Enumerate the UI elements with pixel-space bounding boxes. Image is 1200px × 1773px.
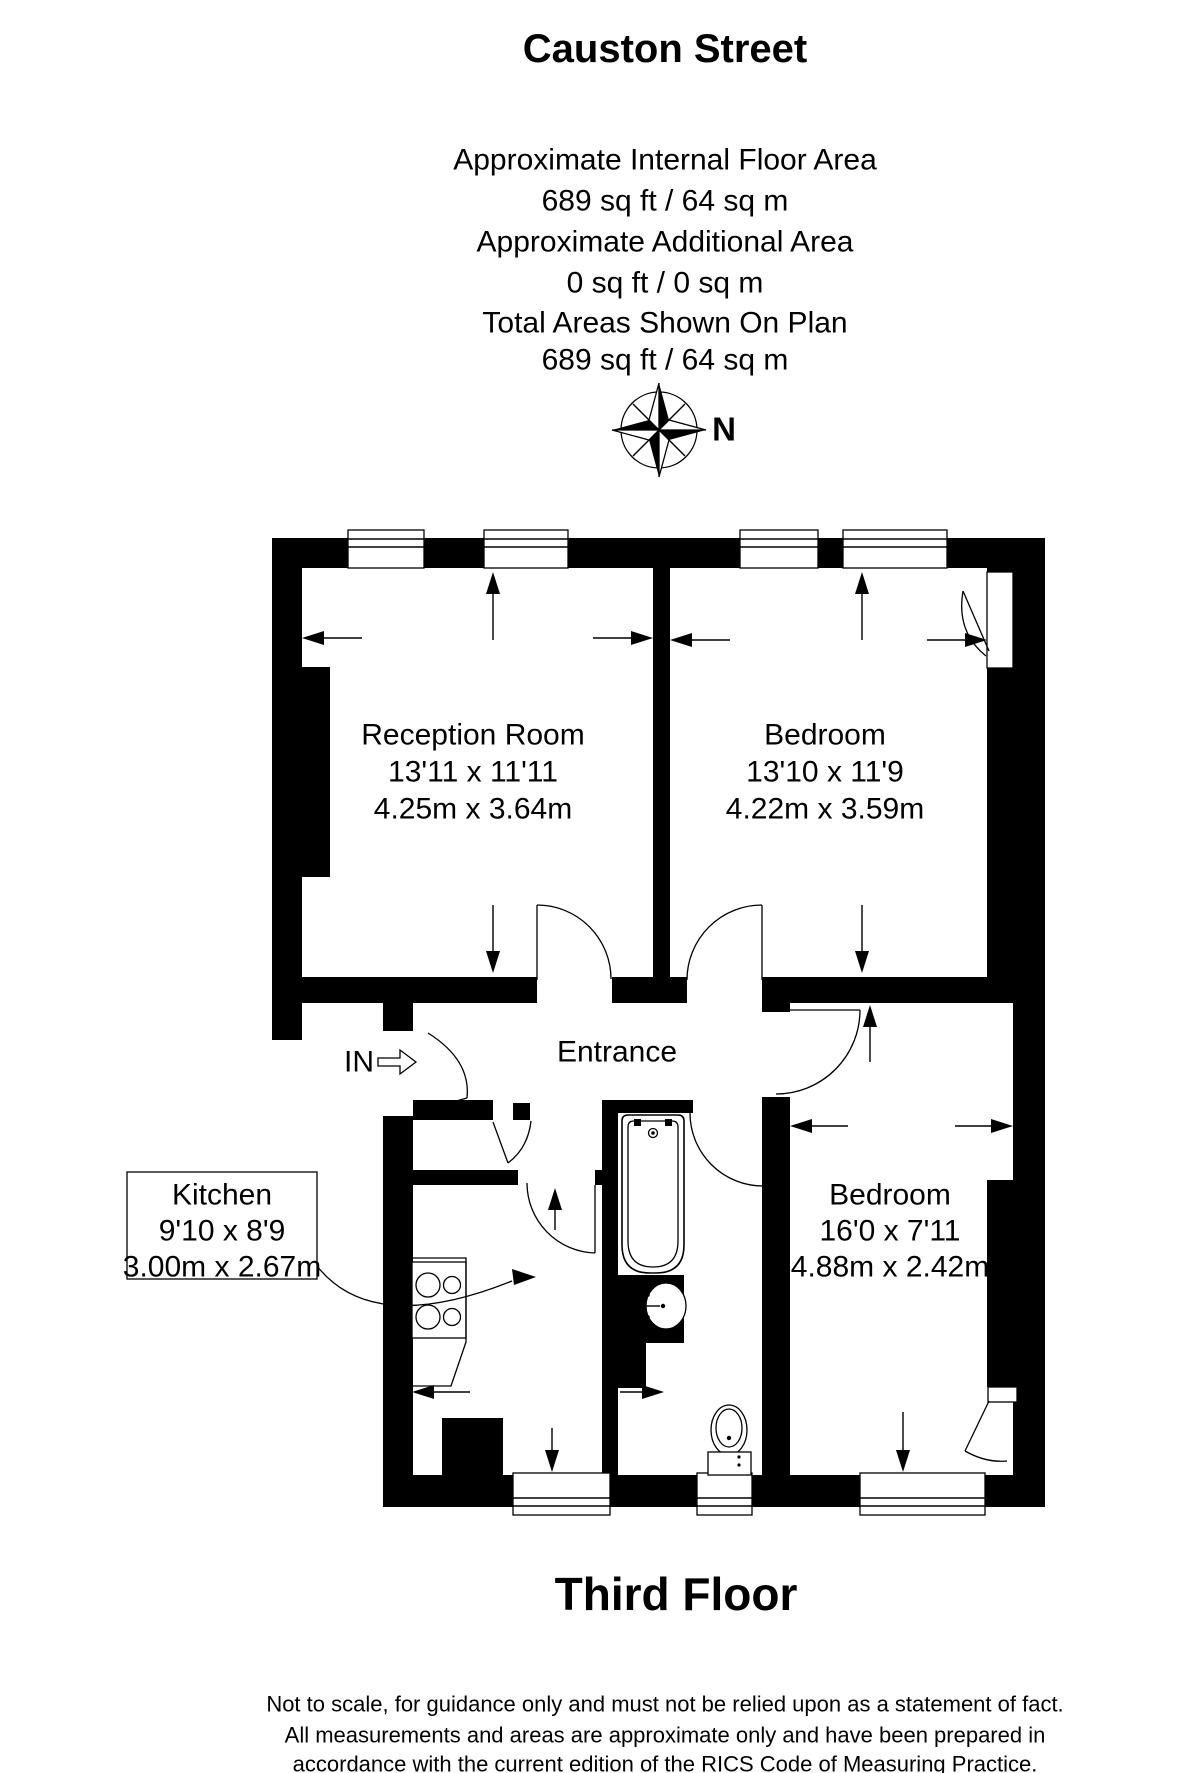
total-area-label: Total Areas Shown On Plan (482, 307, 847, 340)
wall-segment (612, 977, 687, 1003)
entrance-label: Entrance (557, 1036, 677, 1069)
reception-imperial: 13'11 x 11'11 (388, 756, 558, 789)
dimension-arrow (486, 905, 500, 973)
wall-segment (618, 1343, 646, 1388)
disclaimer-line: Not to scale, for guidance only and must… (266, 1692, 1063, 1717)
dimension-arrow (863, 1005, 877, 1062)
window (348, 530, 424, 568)
wall-segment (302, 667, 330, 877)
kitchen-imperial: 9'10 x 8'9 (159, 1215, 286, 1248)
wall-segment (1013, 538, 1045, 1507)
wall-segment (272, 538, 302, 1040)
wall-segment (383, 1003, 413, 1031)
leader-arrowhead (512, 1269, 536, 1285)
kitchen-name: Kitchen (172, 1179, 272, 1212)
dimension-arrow (548, 1188, 562, 1230)
door-leaf (965, 1401, 989, 1451)
wall-segment (513, 1103, 530, 1120)
compass-rose-icon: N (612, 383, 736, 477)
wall-segment (653, 568, 670, 977)
stove-icon (412, 1258, 466, 1386)
page-title: Causton Street (523, 27, 808, 71)
sink-icon (646, 1283, 686, 1329)
internal-area-label: Approximate Internal Floor Area (453, 144, 877, 177)
window (843, 530, 947, 568)
bedroom1-name: Bedroom (764, 719, 886, 752)
dimension-arrow (412, 1385, 470, 1399)
window (860, 1473, 985, 1515)
wall-segment (987, 668, 1013, 977)
wall-segment (752, 1475, 860, 1507)
reception-name: Reception Room (361, 719, 584, 752)
wall-segment (412, 1170, 518, 1185)
door-arc (690, 1113, 763, 1186)
door-arc (965, 1451, 1007, 1461)
doors (413, 905, 860, 1253)
bedroom1-imperial: 13'10 x 11'9 (746, 756, 904, 789)
north-label: N (712, 411, 736, 448)
bedroom2-metric: 4.88m x 2.42m (791, 1251, 989, 1284)
entry-arrow-icon (378, 1050, 416, 1074)
bedroom2-imperial: 16'0 x 7'11 (819, 1215, 960, 1248)
dimension-arrow (896, 1412, 910, 1472)
entry-marker: IN (344, 1046, 416, 1079)
dimension-arrow (855, 572, 869, 640)
internal-area-value: 689 sq ft / 64 sq m (542, 185, 789, 218)
dimension-arrow (486, 572, 500, 640)
wall-segment (383, 1475, 513, 1507)
kitchen-metric: 3.00m x 2.67m (123, 1251, 321, 1284)
dimension-arrow (593, 631, 653, 645)
window (697, 1473, 752, 1515)
toilet-icon (708, 1405, 751, 1475)
recess (988, 1387, 1017, 1402)
window (740, 530, 818, 568)
dimension-arrow (855, 905, 869, 973)
wall-segment (818, 538, 843, 568)
dimension-arrow (545, 1428, 559, 1472)
wall-segment (985, 1475, 1045, 1507)
door-arc (776, 1010, 860, 1094)
bedroom2-name: Bedroom (829, 1179, 951, 1212)
floorplan-canvas: Causton Street Approximate Internal Floo… (0, 0, 1200, 1773)
additional-area-label: Approximate Additional Area (477, 226, 854, 259)
wall-segment (762, 977, 1045, 1003)
wall-segment (602, 1100, 618, 1475)
door-leaf (493, 1122, 508, 1163)
window (513, 1473, 610, 1515)
additional-area-value: 0 sq ft / 0 sq m (567, 267, 764, 300)
reception-metric: 4.25m x 3.64m (374, 793, 572, 826)
disclaimer-line: All measurements and areas are approxima… (285, 1723, 1046, 1748)
wall-segment (987, 1180, 1017, 1387)
wall-segment (272, 977, 537, 1003)
bathtub-icon (622, 1115, 684, 1273)
wall-segment (762, 1003, 790, 1012)
total-area-value: 689 sq ft / 64 sq m (542, 344, 789, 377)
wall-segment (383, 1116, 413, 1507)
door-arc (537, 905, 611, 979)
door-arc (527, 1183, 595, 1253)
bedroom1-metric: 4.22m x 3.59m (726, 793, 924, 826)
dimension-arrow (670, 633, 730, 647)
entry-label: IN (344, 1046, 374, 1079)
floorplan-page: Causton Street Approximate Internal Floo… (0, 0, 1200, 1773)
dimension-arrow (955, 1119, 1013, 1133)
window (484, 530, 568, 568)
disclaimer-line: accordance with the current edition of t… (293, 1752, 1038, 1773)
dimension-arrow (927, 633, 987, 647)
wall-segment (424, 538, 484, 568)
floor-title: Third Floor (555, 1568, 798, 1620)
wall-segment (762, 1097, 790, 1475)
door-arc (428, 1033, 467, 1098)
wall-segment (987, 538, 1013, 572)
dimension-arrow (302, 631, 362, 645)
recess (987, 572, 1013, 668)
walls (272, 538, 1045, 1507)
wall-segment (442, 1418, 503, 1475)
door-arc (508, 1121, 531, 1163)
dimension-arrow (790, 1119, 848, 1133)
wall-segment (610, 1475, 697, 1507)
door-arc (687, 905, 762, 980)
wall-segment (568, 538, 740, 568)
wall-segment (602, 1100, 693, 1113)
